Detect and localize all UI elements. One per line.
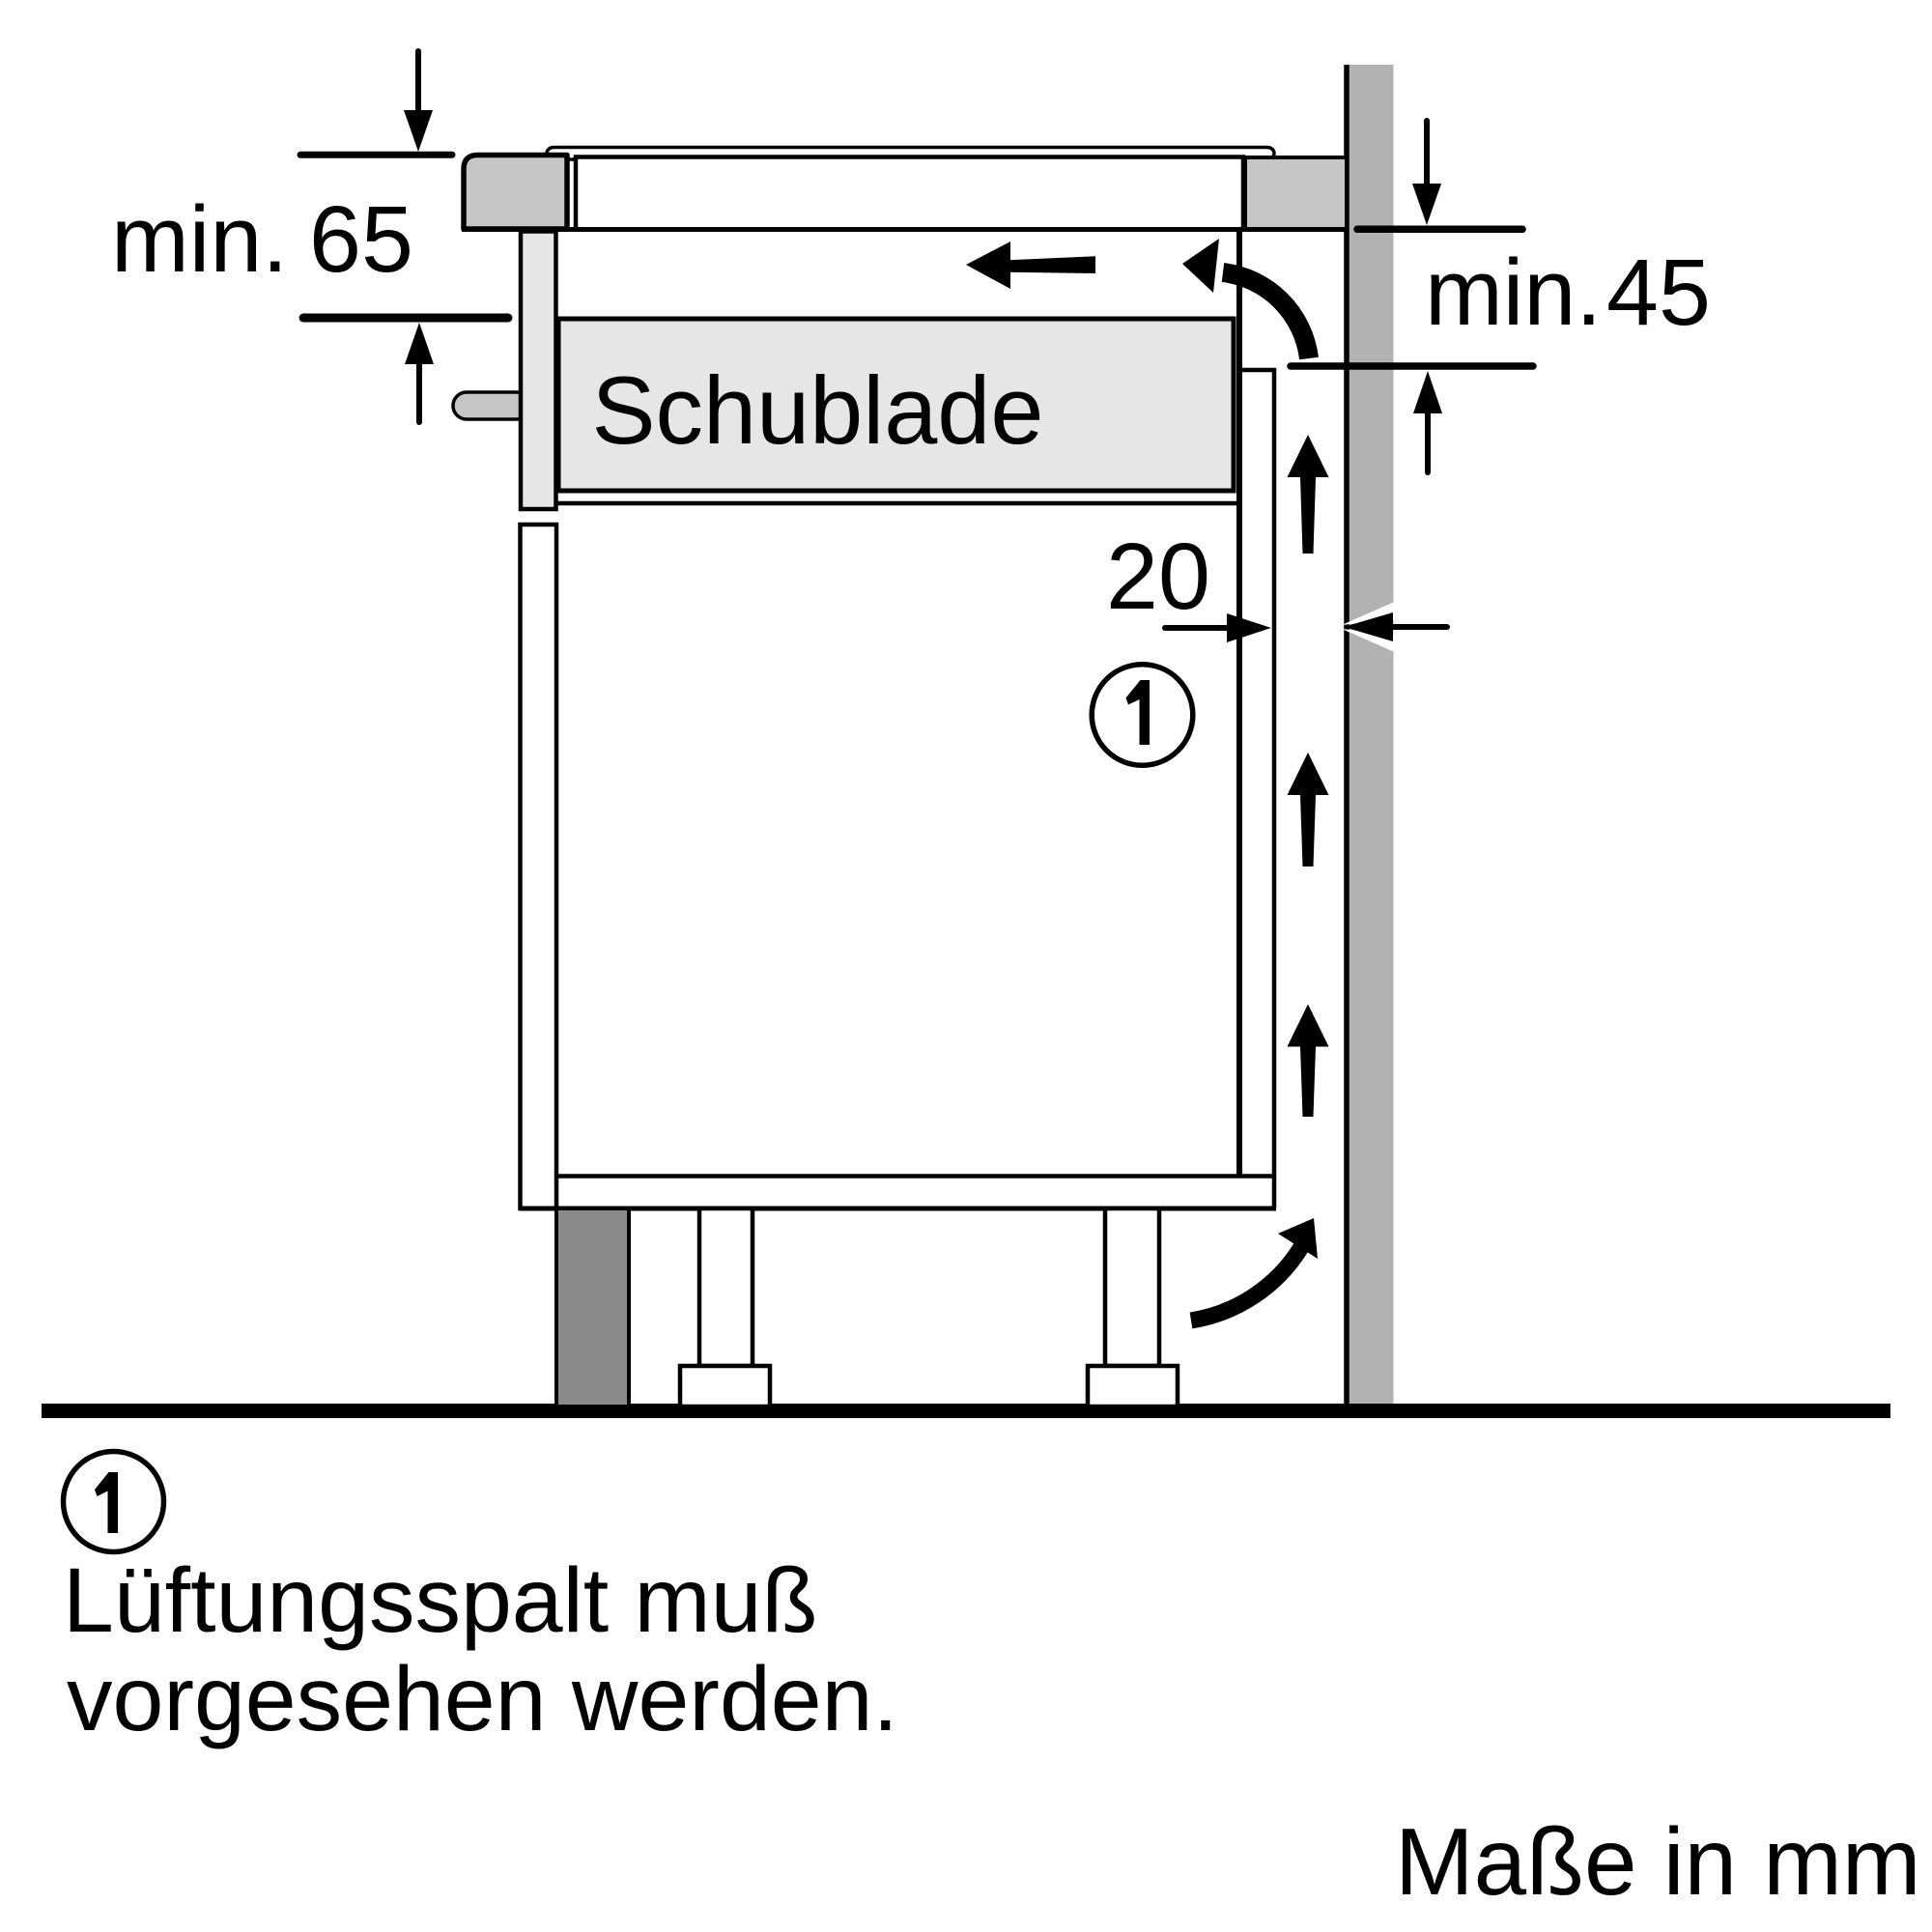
- svg-text:vorgesehen werden.: vorgesehen werden.: [67, 1648, 898, 1750]
- svg-text:Maße in mm: Maße in mm: [1395, 1808, 1921, 1915]
- svg-text:min.: min.: [111, 186, 288, 292]
- svg-text:Schublade: Schublade: [592, 356, 1044, 464]
- svg-text:Lüftungsspalt muß: Lüftungsspalt muß: [63, 1549, 818, 1652]
- svg-text:65: 65: [309, 186, 413, 292]
- svg-text:min.: min.: [1425, 240, 1602, 345]
- svg-text:20: 20: [1106, 524, 1210, 629]
- svg-text:45: 45: [1606, 240, 1711, 345]
